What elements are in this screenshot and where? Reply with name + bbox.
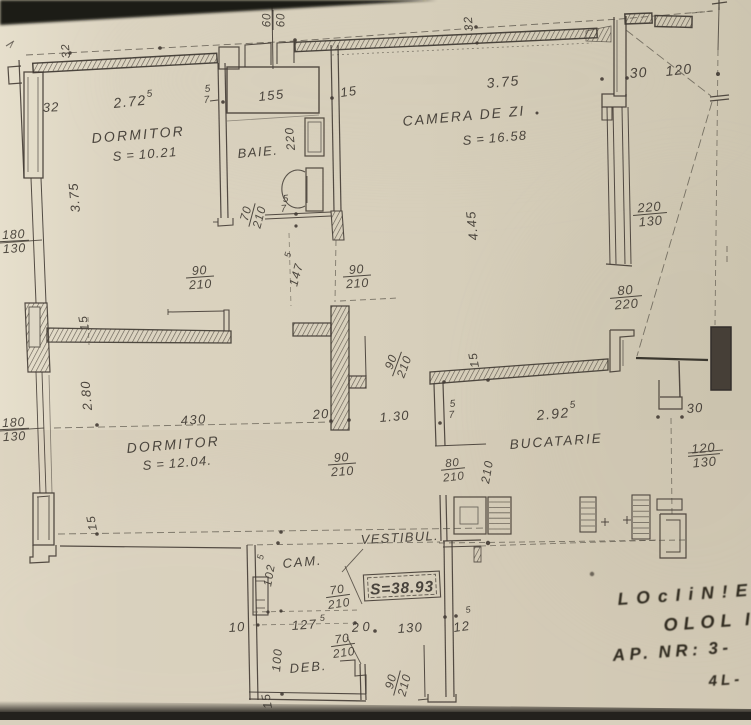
svg-text:120: 120 (665, 60, 693, 79)
svg-text:90: 90 (191, 263, 207, 278)
svg-text:5: 5 (319, 613, 326, 623)
svg-text:130: 130 (2, 429, 26, 444)
svg-text:12: 12 (452, 618, 471, 635)
svg-text:210: 210 (187, 277, 212, 293)
svg-text:60: 60 (262, 13, 274, 27)
svg-text:2 0: 2 0 (350, 619, 371, 635)
svg-text:15: 15 (465, 351, 482, 369)
svg-text:7: 7 (448, 409, 456, 421)
svg-text:32: 32 (60, 43, 73, 59)
svg-text:430: 430 (180, 411, 207, 428)
svg-text:5: 5 (204, 83, 212, 95)
svg-text:90: 90 (348, 262, 364, 277)
svg-text:180: 180 (2, 415, 26, 430)
svg-text:100: 100 (269, 648, 285, 673)
svg-text:127: 127 (291, 616, 317, 633)
svg-text:155: 155 (258, 86, 286, 104)
svg-text:3.75: 3.75 (65, 182, 83, 213)
svg-text:3.75: 3.75 (486, 72, 521, 91)
svg-text:15: 15 (339, 83, 358, 100)
svg-text:20: 20 (311, 406, 330, 422)
svg-text:130: 130 (2, 241, 26, 256)
svg-text:210: 210 (442, 470, 466, 484)
svg-text:210: 210 (344, 276, 369, 292)
svg-text:210: 210 (329, 464, 354, 480)
svg-text:60: 60 (276, 13, 288, 27)
svg-text:5: 5 (146, 88, 154, 100)
svg-text:30: 30 (686, 400, 704, 416)
svg-text:7: 7 (203, 94, 211, 106)
svg-text:180: 180 (2, 227, 26, 242)
svg-text:4L-: 4L- (707, 671, 744, 690)
svg-text:5: 5 (569, 399, 577, 411)
svg-text:7: 7 (280, 203, 288, 215)
svg-text:15: 15 (83, 514, 100, 532)
svg-text:5: 5 (449, 398, 457, 410)
svg-text:32: 32 (461, 15, 476, 32)
svg-text:S=38.93: S=38.93 (370, 578, 435, 598)
svg-text:32: 32 (42, 99, 60, 115)
svg-text:15: 15 (75, 314, 92, 332)
svg-text:10: 10 (228, 619, 246, 635)
svg-text:130: 130 (692, 453, 717, 470)
svg-text:1.30: 1.30 (379, 407, 410, 425)
svg-text:220: 220 (613, 295, 639, 312)
svg-text:130: 130 (638, 212, 663, 229)
svg-text:220: 220 (282, 126, 298, 152)
svg-text:2.80: 2.80 (77, 380, 95, 412)
svg-text:90: 90 (333, 450, 349, 465)
svg-text:4.45: 4.45 (463, 210, 481, 242)
svg-text:30: 30 (629, 64, 648, 81)
svg-text:2.92: 2.92 (535, 404, 571, 423)
svg-text:130: 130 (397, 619, 423, 636)
